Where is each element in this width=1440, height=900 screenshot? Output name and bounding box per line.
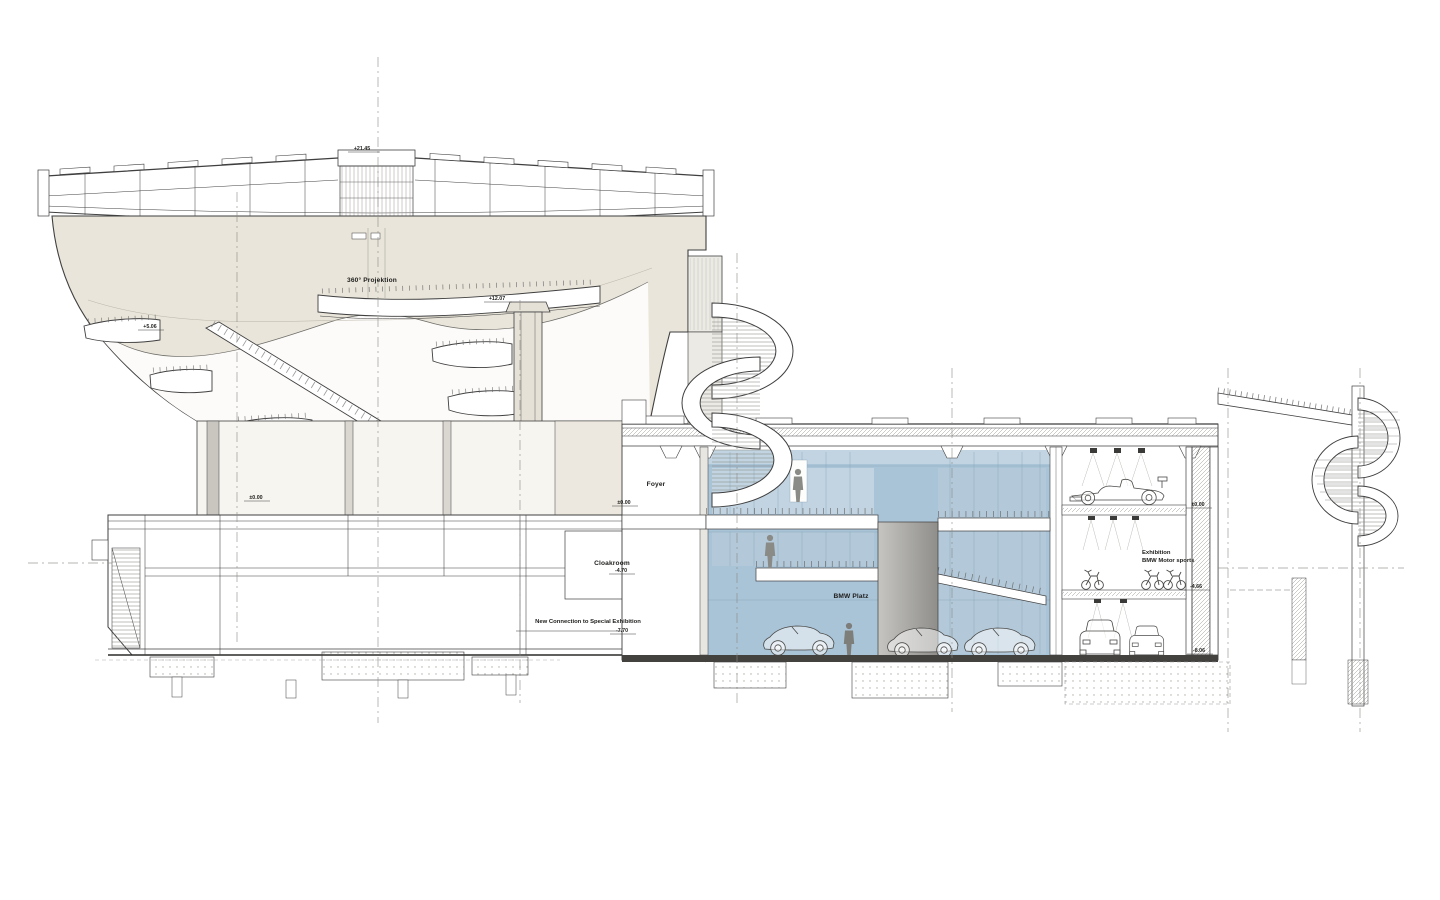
label-cloakroom: Cloakroom (594, 560, 630, 567)
label-bmw-platz: BMW Platz (833, 593, 869, 600)
section-canvas: 360° Projektion Foyer Cloakroom BMW Plat… (0, 0, 1440, 900)
access-ramp (1218, 393, 1352, 425)
level-bowl-ring: +12.07 (489, 296, 505, 302)
label-exhibition-2: BMW Motor sports (1142, 558, 1195, 564)
level-bowl-ramp: +5.06 (143, 324, 156, 330)
label-projektion: 360° Projektion (347, 276, 397, 284)
level-wing-ground: -8.06 (1193, 648, 1205, 654)
level-entry-foyer: ±0.00 (617, 500, 630, 506)
level-wing-mid: -4.66 (1190, 584, 1202, 590)
label-foyer: Foyer (647, 481, 666, 488)
core-wall-right (1186, 447, 1218, 655)
level-entry-left: ±0.00 (249, 495, 262, 501)
label-new-connection: New Connection to Special Exhibition (535, 619, 641, 625)
far-right-structures (1218, 386, 1400, 706)
foundation-right (714, 662, 1230, 704)
level-bowl-top: +21.45 (354, 146, 370, 152)
foundation (95, 652, 560, 698)
label-exhibition-1: Exhibition (1142, 550, 1171, 556)
level-connection: -7.70 (616, 628, 628, 634)
spiral-staircase (1312, 386, 1400, 706)
ground-slab (622, 655, 1218, 662)
hatched-wall (1292, 578, 1306, 660)
level-wing-top: ±0.00 (1191, 502, 1204, 508)
level-cloakroom: -4.70 (615, 568, 627, 574)
architectural-section-drawing: 360° Projektion Foyer Cloakroom BMW Plat… (0, 0, 1440, 900)
